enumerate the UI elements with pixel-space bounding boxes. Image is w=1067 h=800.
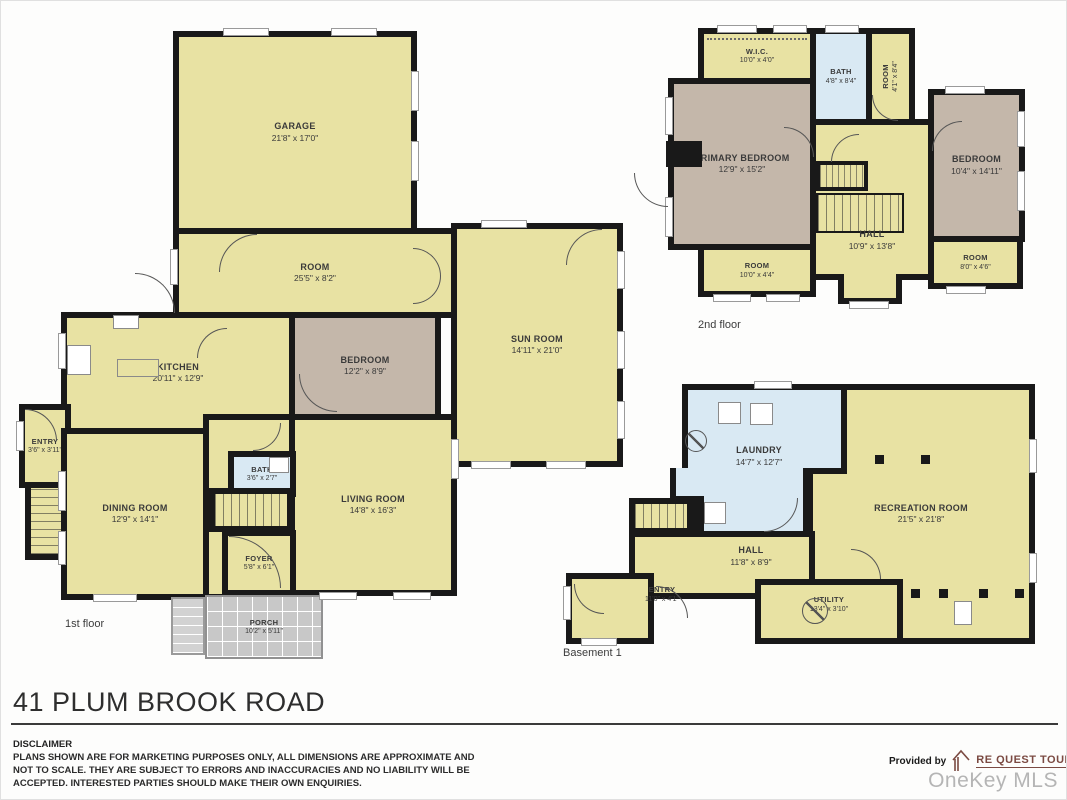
garage-door-panel [331, 28, 377, 36]
window [717, 25, 757, 33]
support-post [939, 589, 948, 598]
window [58, 333, 66, 369]
wall-notch [666, 141, 702, 167]
rec-fixture [954, 601, 972, 625]
room-utility: UTILITY 13'4" x 3'10" [755, 579, 903, 644]
support-post [979, 589, 988, 598]
closet-rod [707, 38, 807, 40]
window [58, 471, 66, 511]
garage-door-panel [223, 28, 269, 36]
bedroom2-label: BEDROOM 10'4" x 14'11" [951, 154, 1002, 177]
disclaimer-heading: DISCLAIMER [13, 739, 72, 750]
room-bedroom1: BEDROOM 12'2" x 8'9" [289, 312, 441, 420]
provider-name: RE QUEST TOURS [976, 754, 1067, 768]
window [93, 594, 137, 602]
room-living: LIVING ROOM 14'8" x 16'3" [289, 414, 457, 596]
window [411, 141, 419, 181]
kitchen-island [117, 359, 159, 377]
laundry-sink-icon [704, 502, 726, 524]
window [481, 220, 527, 228]
floor2-tag: 2nd floor [698, 319, 741, 331]
window [58, 531, 66, 565]
porch-steps [171, 597, 205, 655]
window [16, 421, 24, 451]
floorplan-sheet: GARAGE 21'8" x 17'0" ROOM 25'5" x 8'2" S… [0, 0, 1067, 800]
window [170, 249, 178, 285]
room-dining: DINING ROOM 12'9" x 14'1" [61, 428, 209, 600]
room-bath2: BATH 4'8" x 8'4" [810, 28, 872, 125]
window [411, 71, 419, 111]
window [713, 294, 751, 302]
kitchen-sink-icon [113, 315, 139, 329]
room-laundry-upper [682, 384, 847, 474]
washer-icon [718, 402, 741, 424]
window [393, 592, 431, 600]
recreation-label: RECREATION ROOM 21'5" x 21'8" [874, 503, 968, 526]
room-side2-label: ROOM 4'1" x 8'4" [881, 61, 900, 92]
disclaimer-line: PLANS SHOWN ARE FOR MARKETING PURPOSES O… [13, 752, 475, 765]
kitchen-label: KITCHEN 20'11" x 12'9" [153, 362, 204, 385]
stairs2-treads [816, 193, 904, 233]
primary-bedroom-label: PRIMARY BEDROOM 12'9" x 15'2" [694, 153, 789, 176]
bath2-label: BATH 4'8" x 8'4" [826, 67, 857, 86]
disclaimer-line: ACCEPTED. INTERESTED PARTIES SHOULD MAKE… [13, 778, 475, 791]
basement-tag: Basement 1 [563, 647, 622, 659]
disclaimer-body: PLANS SHOWN ARE FOR MARKETING PURPOSES O… [13, 752, 475, 790]
support-post [875, 455, 884, 464]
page-title: 41 PLUM BROOK ROAD [13, 687, 325, 718]
window [563, 586, 571, 620]
window [1029, 553, 1037, 583]
room-garage: GARAGE 21'8" x 17'0" [173, 31, 417, 234]
window [617, 251, 625, 289]
support-post [1015, 589, 1024, 598]
window [546, 461, 586, 469]
wic-label: W.I.C. 10'0" x 4'0" [740, 47, 775, 66]
hall2-extension [838, 274, 902, 304]
window [825, 25, 859, 33]
window [617, 331, 625, 369]
stove-icon [67, 345, 91, 375]
window [1029, 439, 1037, 473]
window [849, 301, 889, 309]
window [617, 401, 625, 439]
utility-tank-icon [802, 598, 828, 624]
room-br2: ROOM 8'0" x 4'6" [928, 236, 1023, 289]
window [665, 97, 673, 135]
room-br2-label: ROOM 8'0" x 4'6" [960, 253, 991, 272]
window [471, 461, 511, 469]
window [754, 381, 792, 389]
window [773, 25, 807, 33]
window [1017, 171, 1025, 211]
bath1-sink-icon [269, 457, 289, 473]
bedroom1-label: BEDROOM 12'2" x 8'9" [340, 355, 389, 378]
room-bl2-label: ROOM 10'0" x 4'4" [740, 261, 775, 280]
window [451, 439, 459, 479]
stairs-basement [629, 498, 693, 534]
room-porch: PORCH 10'2" x 5'11" [205, 595, 323, 659]
room-bl2: ROOM 10'0" x 4'4" [698, 244, 816, 297]
porch-label: PORCH 10'2" x 5'11" [245, 618, 283, 637]
title-rule [11, 723, 1058, 725]
floor1-tag: 1st floor [65, 618, 104, 630]
room-bedroom2: BEDROOM 10'4" x 14'11" [928, 89, 1025, 242]
support-post [921, 455, 930, 464]
stairs-first-floor [209, 488, 293, 532]
onekey-mls-watermark: OneKey MLS [928, 769, 1058, 793]
window [945, 86, 985, 94]
window [1017, 111, 1025, 147]
window [319, 592, 357, 600]
room1-label: ROOM 25'5" x 8'2" [294, 262, 336, 285]
stairs2-landing [816, 161, 868, 191]
dryer-icon [750, 403, 773, 425]
sunroom-label: SUN ROOM 14'11" x 21'0" [511, 334, 563, 357]
window [766, 294, 800, 302]
room-wic: W.I.C. 10'0" x 4'0" [698, 28, 816, 84]
living-label: LIVING ROOM 14'8" x 16'3" [341, 494, 405, 517]
disclaimer-line: NOT TO SCALE. THEY ARE SUBJECT TO ERRORS… [13, 765, 475, 778]
window [581, 638, 617, 646]
door-arc-exterior2 [634, 173, 668, 207]
door-arc-side-entrance [135, 273, 175, 313]
provider-prefix: Provided by [889, 756, 946, 767]
garage-label: GARAGE 21'8" x 17'0" [272, 121, 319, 144]
support-post [911, 589, 920, 598]
dining-label: DINING ROOM 12'9" x 14'1" [102, 503, 167, 526]
electrical-panel-icon [685, 430, 707, 452]
window [946, 286, 986, 294]
